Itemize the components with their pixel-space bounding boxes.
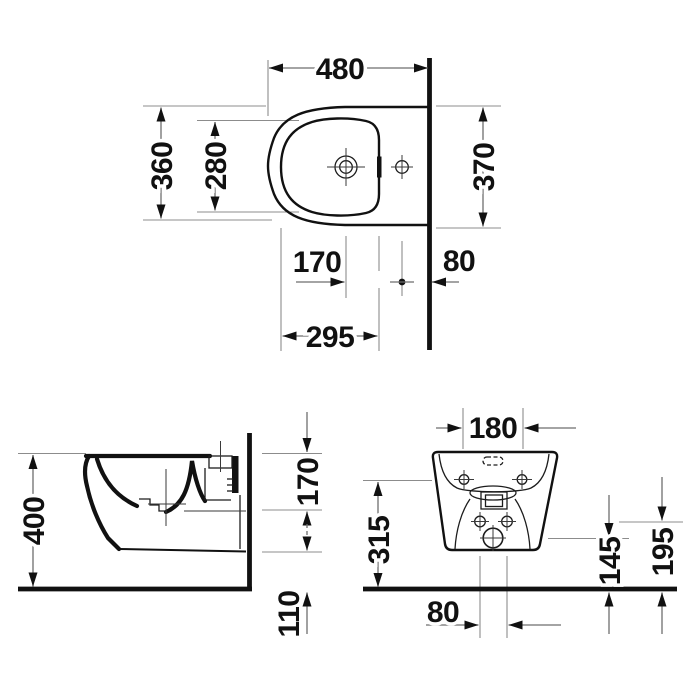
side-bottom-to-floor-dim: 110 — [273, 591, 306, 638]
top-view: 480 360 280 370 170 80 295 — [143, 53, 501, 354]
top-view-extension-lines — [143, 60, 501, 351]
fixing-hole-left — [454, 470, 474, 489]
lower-hole-left — [471, 512, 489, 531]
rear-fixing-span-dim: 180 — [469, 412, 518, 445]
top-dim-280: 280 — [200, 122, 233, 211]
top-width-at-wall-dim: 370 — [468, 143, 501, 192]
pedestal-curve-right — [515, 499, 530, 549]
bidet-installation-drawing: 480 360 280 370 170 80 295 — [0, 0, 700, 700]
lower-hole-right — [498, 512, 516, 531]
top-dim-370: 370 — [468, 108, 501, 227]
top-basin-length-dim: 295 — [306, 321, 355, 354]
side-dim-170: 170 — [292, 412, 325, 551]
overflow-slot-rear — [483, 457, 503, 465]
side-dim-400: 400 — [18, 455, 51, 587]
top-dim-480: 480 — [269, 53, 428, 86]
rear-outlet-height-dim: 145 — [594, 537, 627, 586]
top-tap-to-wall-dim: 80 — [443, 245, 475, 278]
side-view: 400 170 110 — [18, 412, 325, 637]
technical-drawing-page: 480 360 280 370 170 80 295 — [0, 0, 700, 700]
rear-supply-height-dim: 195 — [647, 528, 680, 577]
rear-fixing-height-dim: 315 — [363, 516, 396, 565]
rear-gap-mark — [232, 456, 239, 493]
top-overall-depth-dim: 480 — [316, 53, 365, 86]
overflow-mark-top — [377, 157, 382, 178]
tap-hole-top — [391, 155, 413, 179]
bidet-side-profile — [85, 441, 246, 552]
outlet-hole — [480, 525, 506, 551]
bidet-rear-outline — [433, 452, 557, 550]
rear-lower-span-dim: 80 — [427, 596, 459, 629]
top-basin-width-dim: 280 — [200, 142, 233, 191]
side-view-extension-lines — [18, 454, 322, 553]
drain-top — [327, 148, 365, 186]
fixing-hole-right — [512, 470, 532, 489]
top-dim-295: 295 — [283, 321, 378, 354]
drain-flange-rear — [470, 486, 516, 500]
rear-dim-180: 180 — [436, 412, 576, 445]
rear-dim-145: 145 — [594, 495, 627, 634]
rear-view: 180 315 145 195 80 — [363, 408, 683, 638]
rear-dim-80: 80 — [426, 596, 561, 629]
rear-view-extension-lines — [363, 408, 683, 638]
top-dim-360: 360 — [146, 108, 179, 219]
top-drain-to-tap-dim: 170 — [293, 246, 342, 279]
drain-box-inner — [486, 495, 503, 507]
side-rim-to-fixing-dim: 170 — [292, 458, 325, 507]
rear-dim-195: 195 — [647, 477, 680, 634]
top-dim-170: 170 — [293, 246, 345, 282]
side-overall-height-dim: 400 — [18, 497, 51, 546]
pedestal-curve-left — [455, 499, 470, 549]
rear-dim-315: 315 — [363, 482, 396, 587]
bidet-outer-rim-top — [268, 107, 429, 225]
top-dim-80: 80 — [390, 245, 475, 286]
side-dim-110: 110 — [273, 591, 307, 638]
top-outer-width-dim: 360 — [146, 142, 179, 191]
